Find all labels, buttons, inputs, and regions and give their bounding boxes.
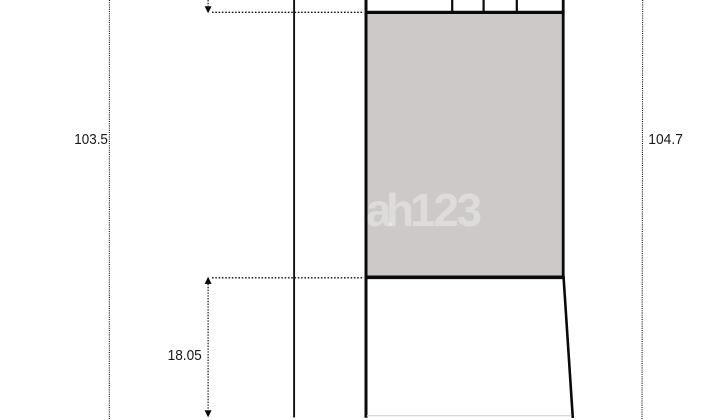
svg-text:ah123: ah123 <box>366 184 482 236</box>
svg-text:18.05: 18.05 <box>168 347 202 364</box>
svg-text:104.7: 104.7 <box>648 131 683 148</box>
svg-text:103.5: 103.5 <box>74 131 108 148</box>
